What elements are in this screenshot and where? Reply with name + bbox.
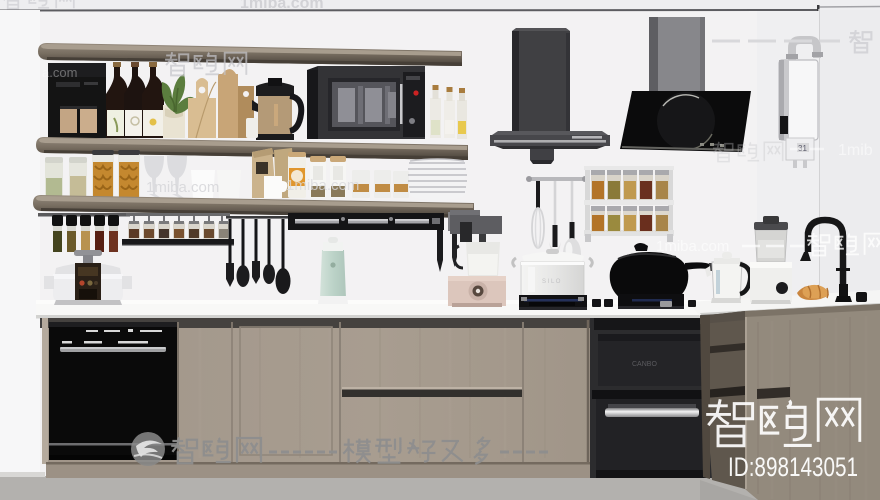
svg-text:a.com: a.com <box>42 65 77 80</box>
svg-text:1miba.com: 1miba.com <box>240 0 324 12</box>
svg-text:ID:898143051: ID:898143051 <box>728 452 858 482</box>
svg-text:CANBO: CANBO <box>632 361 657 368</box>
svg-text:1miba.com: 1miba.com <box>146 179 219 196</box>
svg-text:1miba.com: 1miba.com <box>656 238 729 255</box>
svg-text:1miba.com: 1miba.com <box>286 177 359 194</box>
svg-text:1mib: 1mib <box>838 142 873 159</box>
svg-text:S I L O: S I L O <box>542 279 561 285</box>
